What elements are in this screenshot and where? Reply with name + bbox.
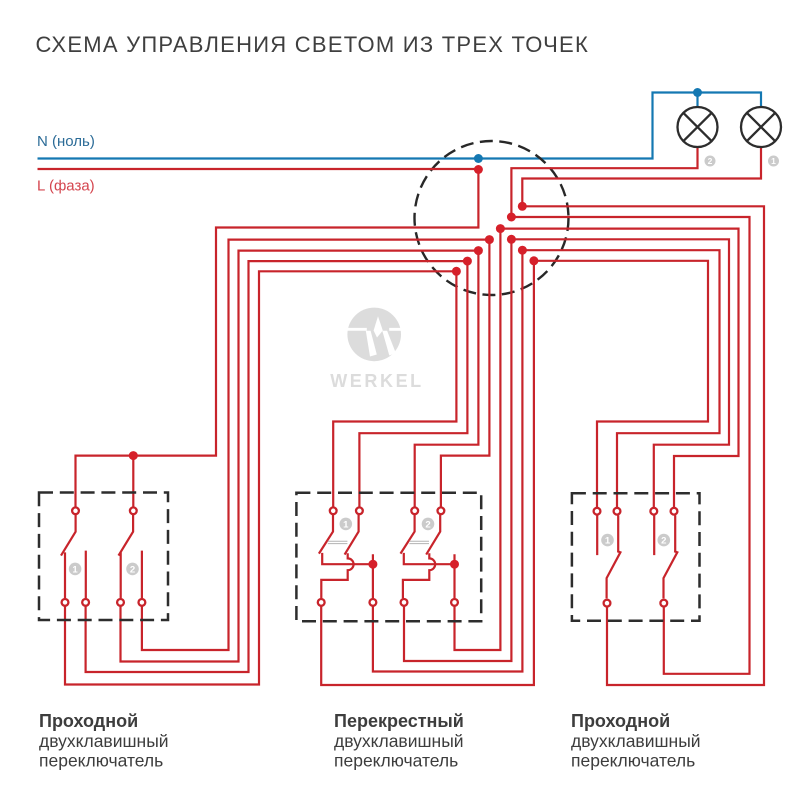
svg-text:Проходной: Проходной bbox=[571, 711, 670, 731]
svg-text:двухклавишный: двухклавишный bbox=[39, 731, 169, 751]
svg-text:переключатель: переключатель bbox=[39, 751, 163, 771]
svg-text:1: 1 bbox=[72, 564, 78, 575]
svg-text:СХЕМА УПРАВЛЕНИЯ СВЕТОМ ИЗ ТРЕ: СХЕМА УПРАВЛЕНИЯ СВЕТОМ ИЗ ТРЕХ ТОЧЕК bbox=[36, 32, 590, 57]
svg-text:двухклавишный: двухклавишный bbox=[334, 731, 464, 751]
svg-text:переключатель: переключатель bbox=[571, 751, 695, 771]
svg-text:2: 2 bbox=[708, 156, 713, 166]
svg-text:WERKEL: WERKEL bbox=[330, 371, 424, 391]
svg-text:1: 1 bbox=[605, 536, 611, 547]
svg-text:двухклавишный: двухклавишный bbox=[571, 731, 701, 751]
svg-text:Проходной: Проходной bbox=[39, 711, 138, 731]
svg-text:N (ноль): N (ноль) bbox=[37, 133, 95, 150]
svg-text:1: 1 bbox=[771, 156, 776, 166]
svg-text:2: 2 bbox=[425, 519, 430, 530]
svg-text:L (фаза): L (фаза) bbox=[37, 178, 95, 195]
svg-text:1: 1 bbox=[343, 519, 349, 530]
svg-text:Перекрестный: Перекрестный bbox=[334, 711, 464, 731]
svg-text:переключатель: переключатель bbox=[334, 751, 458, 771]
svg-text:2: 2 bbox=[661, 536, 666, 547]
svg-text:2: 2 bbox=[130, 564, 135, 575]
